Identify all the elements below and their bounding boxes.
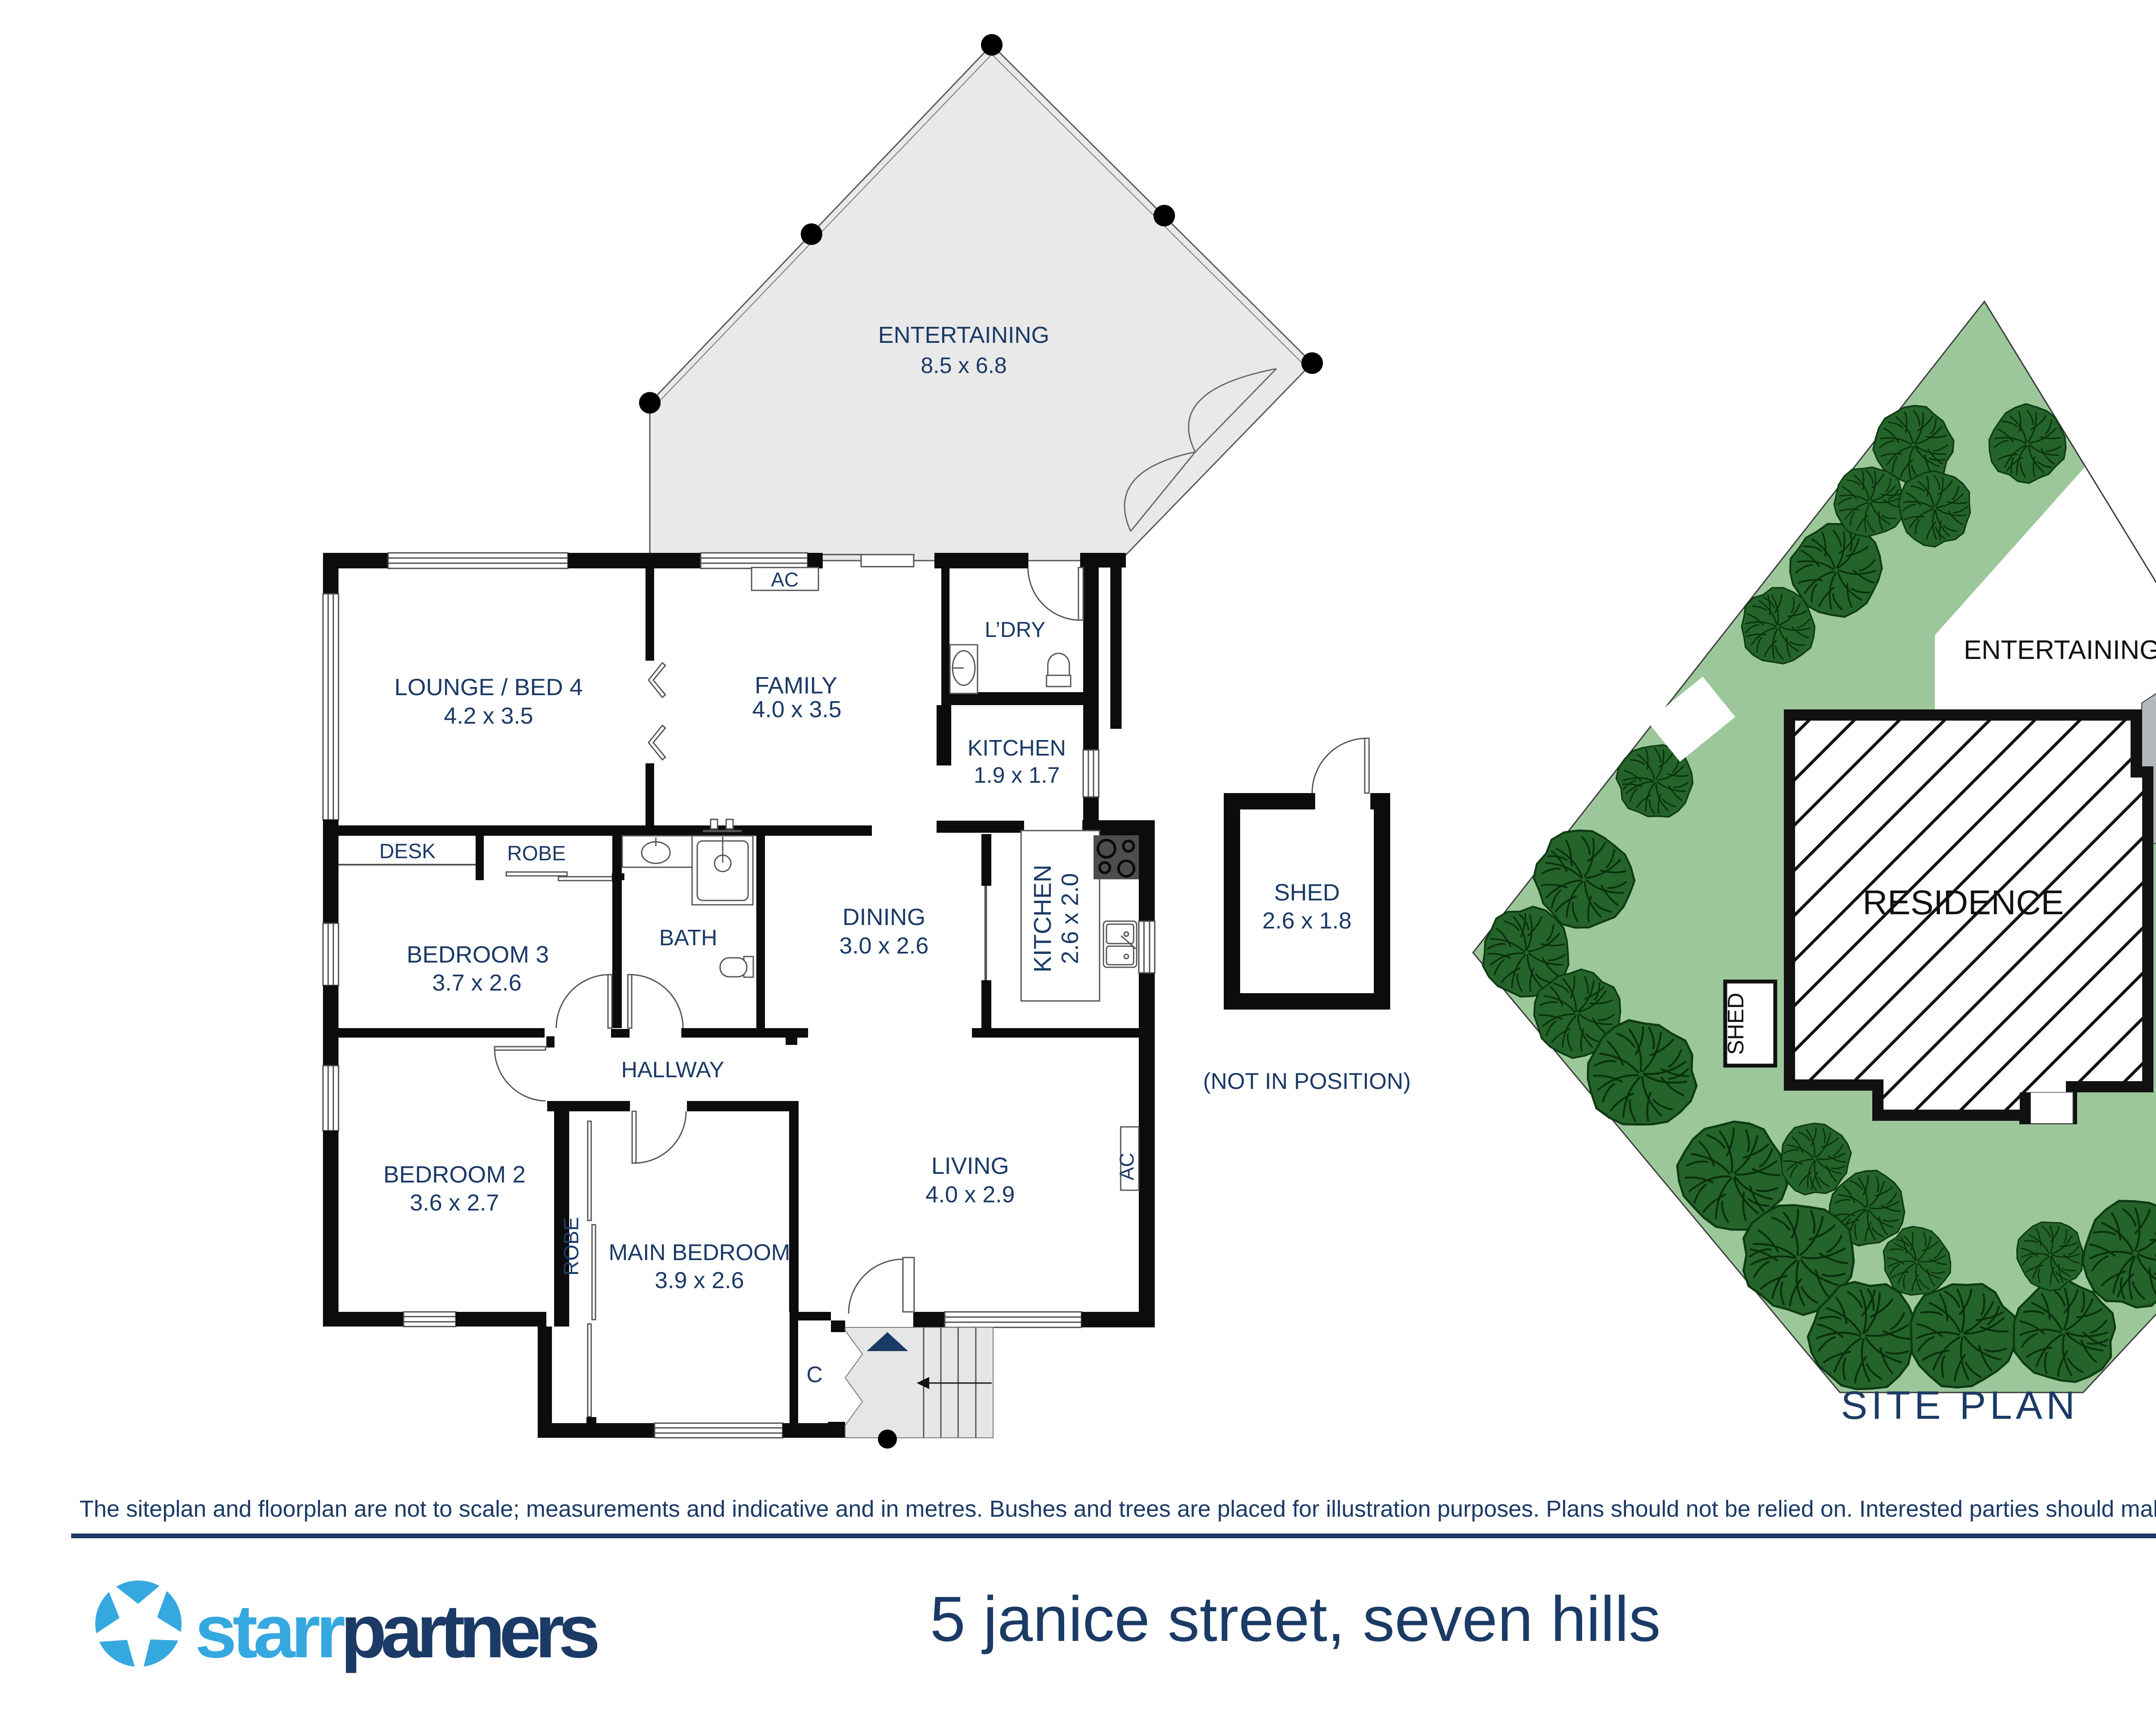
svg-text:FAMILY: FAMILY xyxy=(755,672,837,699)
svg-text:HALLWAY: HALLWAY xyxy=(621,1057,724,1082)
svg-text:2.6 x 1.8: 2.6 x 1.8 xyxy=(1262,908,1351,934)
svg-text:1.9 x 1.7: 1.9 x 1.7 xyxy=(974,763,1059,788)
svg-text:(NOT IN POSITION): (NOT IN POSITION) xyxy=(1203,1069,1411,1094)
svg-text:3.9 x 2.6: 3.9 x 2.6 xyxy=(655,1267,744,1293)
svg-text:DINING: DINING xyxy=(843,903,926,930)
svg-text:SHED: SHED xyxy=(1274,879,1340,906)
svg-text:The siteplan and floorplan are: The siteplan and floorplan are not to sc… xyxy=(79,1496,2156,1522)
svg-text:KITCHEN: KITCHEN xyxy=(968,736,1066,761)
svg-text:5 janice street, seven hills: 5 janice street, seven hills xyxy=(930,1584,1661,1655)
svg-text:LOUNGE / BED 4: LOUNGE / BED 4 xyxy=(394,674,583,700)
svg-text:SHED: SHED xyxy=(1724,993,1749,1055)
svg-text:MAIN BEDROOM: MAIN BEDROOM xyxy=(608,1240,790,1265)
svg-text:C: C xyxy=(806,1362,823,1387)
svg-text:ENTERTAINING: ENTERTAINING xyxy=(1964,635,2156,665)
svg-text:2.6 x 2.0: 2.6 x 2.0 xyxy=(1056,873,1083,964)
svg-text:4.0 x 2.9: 4.0 x 2.9 xyxy=(925,1182,1015,1207)
svg-text:SITE PLAN: SITE PLAN xyxy=(1841,1383,2078,1427)
svg-text:AC: AC xyxy=(771,568,799,591)
svg-text:3.7 x 2.6: 3.7 x 2.6 xyxy=(432,970,521,996)
svg-text:L’DRY: L’DRY xyxy=(985,618,1046,642)
svg-text:BATH: BATH xyxy=(659,925,718,950)
svg-text:3.6 x 2.7: 3.6 x 2.7 xyxy=(410,1190,499,1216)
svg-text:4.0 x 3.5: 4.0 x 3.5 xyxy=(752,696,841,722)
svg-text:ROBE: ROBE xyxy=(507,842,566,865)
svg-text:3.0 x 2.6: 3.0 x 2.6 xyxy=(839,933,928,959)
svg-text:ENTERTAINING: ENTERTAINING xyxy=(878,322,1049,348)
svg-text:RESIDENCE: RESIDENCE xyxy=(1863,883,2064,922)
svg-text:starr: starr xyxy=(195,1590,345,1674)
svg-text:DESK: DESK xyxy=(379,840,436,863)
svg-text:ROBE: ROBE xyxy=(560,1217,583,1276)
svg-text:AC: AC xyxy=(1116,1153,1138,1180)
svg-text:LIVING: LIVING xyxy=(931,1152,1009,1179)
svg-text:KITCHEN: KITCHEN xyxy=(1029,865,1056,972)
svg-text:BEDROOM 3: BEDROOM 3 xyxy=(407,941,549,968)
svg-text:8.5 x 6.8: 8.5 x 6.8 xyxy=(921,353,1006,378)
svg-text:BEDROOM 2: BEDROOM 2 xyxy=(383,1161,526,1188)
svg-text:partners: partners xyxy=(341,1590,598,1674)
svg-text:4.2 x 3.5: 4.2 x 3.5 xyxy=(444,703,533,729)
